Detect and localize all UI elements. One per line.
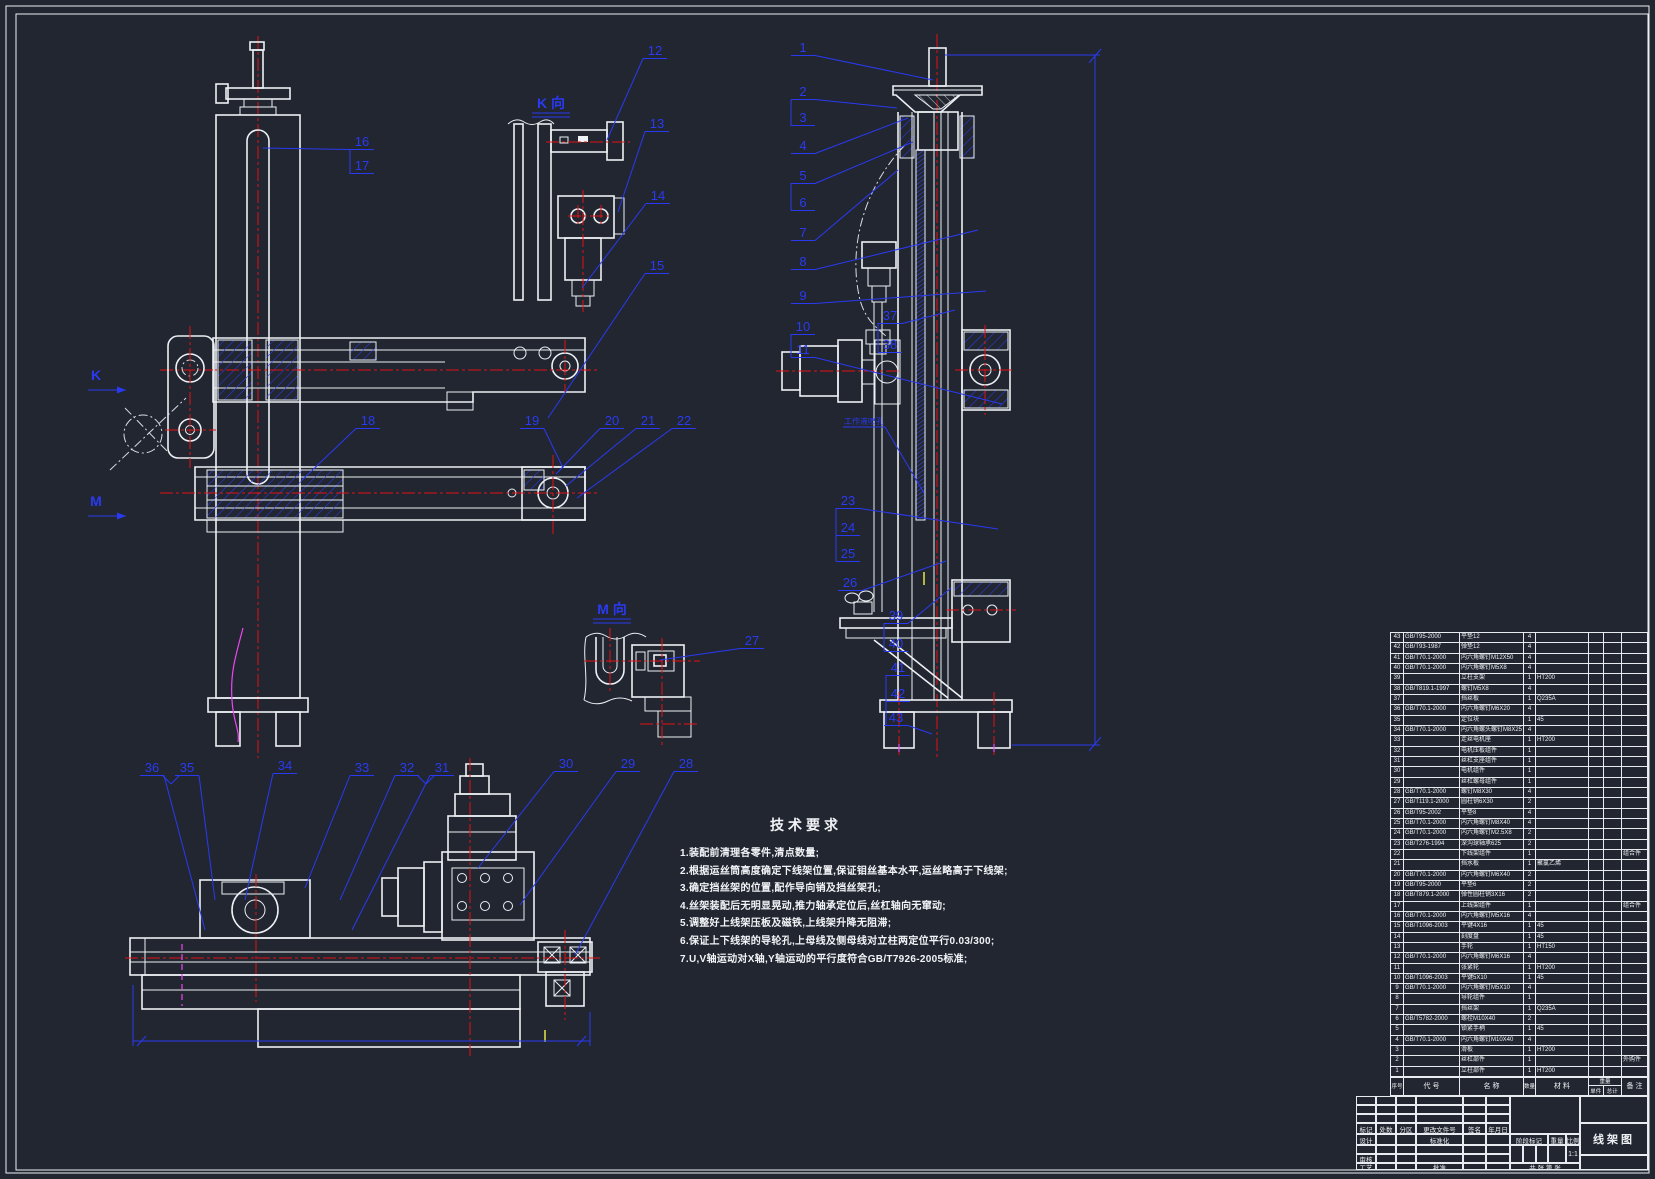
callout-label: 12 bbox=[648, 43, 662, 58]
title-block-cell bbox=[1356, 1105, 1376, 1114]
title-block-cell bbox=[1486, 1105, 1510, 1114]
bom-cell: 6 bbox=[1391, 1015, 1404, 1024]
title-block-cell bbox=[1416, 1096, 1463, 1105]
bom-cell: 1 bbox=[1524, 1056, 1536, 1065]
callout-label: 15 bbox=[650, 258, 664, 273]
callout-leader bbox=[860, 509, 998, 530]
title-block-cell bbox=[1396, 1096, 1416, 1105]
bom-cell: 1 bbox=[1524, 778, 1536, 787]
title-block-cell bbox=[1510, 1145, 1523, 1163]
bom-row: 7挡丝架1Q235A bbox=[1391, 1005, 1647, 1015]
callout-label: 7 bbox=[799, 225, 806, 240]
bom-cell: 37 bbox=[1391, 695, 1404, 704]
bom-header-weight-group: 重量 单件 总计 bbox=[1589, 1077, 1622, 1095]
bom-cell: 平垫12 bbox=[1460, 633, 1524, 642]
bom-cell: 内六角螺钉M6X16 bbox=[1460, 953, 1524, 962]
bom-cell bbox=[1589, 943, 1604, 952]
callout-label: 22 bbox=[677, 413, 691, 428]
bom-row: 19GB/T95-2000平垫62 bbox=[1391, 881, 1647, 891]
bom-cell: 定位块 bbox=[1460, 716, 1524, 725]
bom-cell: 4 bbox=[1524, 705, 1536, 714]
bom-cell bbox=[1622, 994, 1647, 1003]
title-block-cell bbox=[1396, 1114, 1416, 1123]
callout-label: 38 bbox=[883, 337, 897, 352]
bom-cell: 4 bbox=[1524, 809, 1536, 818]
bom-header-total-weight: 总计 bbox=[1604, 1086, 1621, 1095]
tech-requirements-list: 1.装配前清理各零件,清点数量;2.根据运丝筒高度确定下线架位置,保证钼丝基本水… bbox=[680, 845, 1120, 968]
bom-cell bbox=[1622, 695, 1647, 704]
title-block-cell bbox=[1486, 1114, 1510, 1123]
bom-cell bbox=[1536, 850, 1589, 859]
bom-cell bbox=[1589, 674, 1604, 683]
cad-drawing-sheet: 1234567891011373823242526394041424312131… bbox=[0, 0, 1655, 1179]
bom-cell: 2 bbox=[1524, 798, 1536, 807]
bom-cell bbox=[1622, 1025, 1647, 1034]
bom-cell: 1 bbox=[1524, 716, 1536, 725]
bom-cell: 下线架组件 bbox=[1460, 850, 1524, 859]
bom-row: 40GB/T70.1-2000内六角螺钉M5X84 bbox=[1391, 664, 1647, 674]
bom-cell bbox=[1536, 633, 1589, 642]
bom-cell bbox=[1604, 705, 1622, 714]
bom-row: 3滑板1HT200 bbox=[1391, 1046, 1647, 1056]
bom-cell: 28 bbox=[1391, 788, 1404, 797]
bom-cell bbox=[1604, 912, 1622, 921]
title-block-mark: 标记 bbox=[1356, 1123, 1376, 1134]
bom-cell: 组合件 bbox=[1622, 850, 1647, 859]
title-block-cell bbox=[1376, 1134, 1396, 1145]
bom-cell: Q235A bbox=[1536, 695, 1589, 704]
bom-cell bbox=[1604, 871, 1622, 880]
bom-cell: 4 bbox=[1524, 685, 1536, 694]
bom-cell: 43 bbox=[1391, 633, 1404, 642]
bom-cell bbox=[1622, 767, 1647, 776]
bom-cell bbox=[1404, 994, 1460, 1003]
bom-cell bbox=[1536, 881, 1589, 890]
bom-cell bbox=[1589, 840, 1604, 849]
bom-cell: 挡丝板 bbox=[1460, 695, 1524, 704]
callout-label: 13 bbox=[650, 116, 664, 131]
bom-cell bbox=[1622, 891, 1647, 900]
callout-leader bbox=[245, 774, 273, 901]
bom-cell bbox=[1404, 674, 1460, 683]
bom-cell: 14 bbox=[1391, 933, 1404, 942]
bom-cell: 5 bbox=[1391, 1025, 1404, 1034]
bom-cell bbox=[1589, 860, 1604, 869]
title-block-approve: 批准 bbox=[1416, 1163, 1463, 1170]
bom-cell bbox=[1536, 902, 1589, 911]
bom-cell bbox=[1604, 778, 1622, 787]
bom-cell: 深沟球轴承625 bbox=[1460, 840, 1524, 849]
callout-leader bbox=[815, 170, 898, 241]
callout-label: 19 bbox=[525, 413, 539, 428]
bom-cell bbox=[1536, 767, 1589, 776]
bom-cell bbox=[1622, 943, 1647, 952]
callout-label: 36 bbox=[145, 760, 159, 775]
bom-cell bbox=[1404, 695, 1460, 704]
bom-cell: 1 bbox=[1524, 767, 1536, 776]
callout-label: 5 bbox=[799, 168, 806, 183]
title-block-cell bbox=[1486, 1154, 1510, 1163]
bom-cell bbox=[1604, 984, 1622, 993]
bom-row: 4GB/T70.1-2000内六角螺钉M10X404 bbox=[1391, 1036, 1647, 1046]
bom-cell bbox=[1589, 1056, 1604, 1065]
title-block-zone: 分区 bbox=[1396, 1123, 1416, 1134]
bom-cell bbox=[1589, 633, 1604, 642]
bom-row: 28GB/T70.1-2000螺钉M8X304 bbox=[1391, 788, 1647, 798]
bom-cell: 8 bbox=[1391, 994, 1404, 1003]
bom-cell bbox=[1622, 819, 1647, 828]
tech-requirement-item: 4.丝架装配后无明显晃动,推力轴承定位后,丝杠轴向无窜动; bbox=[680, 898, 1120, 916]
bom-cell bbox=[1589, 974, 1604, 983]
title-block-design: 设计 bbox=[1356, 1134, 1376, 1145]
bom-cell: HT150 bbox=[1536, 943, 1589, 952]
bom-cell bbox=[1622, 953, 1647, 962]
bom-cell bbox=[1589, 736, 1604, 745]
bom-cell bbox=[1622, 705, 1647, 714]
bom-cell: 组合件 bbox=[1622, 902, 1647, 911]
view-label: K bbox=[91, 367, 101, 383]
bom-cell bbox=[1604, 902, 1622, 911]
callout-label: 8 bbox=[799, 254, 806, 269]
bom-row: 42GB/T93-1987弹垫124 bbox=[1391, 643, 1647, 653]
bom-cell bbox=[1622, 643, 1647, 652]
bom-row: 18GB/T879.1-2000弹性圆柱销3X162 bbox=[1391, 891, 1647, 901]
bom-cell: 弹性圆柱销3X16 bbox=[1460, 891, 1524, 900]
title-block-cell bbox=[1416, 1114, 1463, 1123]
title-block-scale-value: 1:1 bbox=[1566, 1145, 1580, 1163]
bom-cell bbox=[1622, 1036, 1647, 1045]
bom-cell bbox=[1604, 654, 1622, 663]
bom-row: 11张紧轮1HT200 bbox=[1391, 964, 1647, 974]
tech-requirement-item: 6.保证上下线架的导轮孔,上母线及侧母线对立柱两定位平行0.03/300; bbox=[680, 933, 1120, 951]
callout-label: 29 bbox=[621, 756, 635, 771]
bom-cell: 内六角螺钉M5X10 bbox=[1460, 984, 1524, 993]
bom-cell: 锁紧手柄 bbox=[1460, 1025, 1524, 1034]
title-block-cell bbox=[1396, 1105, 1416, 1114]
bom-cell: 17 bbox=[1391, 902, 1404, 911]
bom-cell bbox=[1604, 850, 1622, 859]
callout-label: 31 bbox=[435, 760, 449, 775]
bom-cell bbox=[1589, 871, 1604, 880]
bom-cell: 41 bbox=[1391, 654, 1404, 663]
title-block-cell bbox=[1416, 1105, 1463, 1114]
bom-cell: 电机组件 bbox=[1460, 767, 1524, 776]
bom-cell: 22 bbox=[1391, 850, 1404, 859]
bom-cell: GB/T70.1-2000 bbox=[1404, 788, 1460, 797]
bom-cell bbox=[1536, 891, 1589, 900]
title-block-cell bbox=[1463, 1096, 1486, 1105]
bom-row: 31丝杠支座组件1 bbox=[1391, 757, 1647, 767]
bom-cell bbox=[1622, 633, 1647, 642]
bom-cell: 35 bbox=[1391, 716, 1404, 725]
title-block-cell bbox=[1523, 1145, 1536, 1163]
title-block-title: 线架图 bbox=[1580, 1123, 1648, 1155]
bom-cell: GB/T276-1994 bbox=[1404, 840, 1460, 849]
bom-cell bbox=[1604, 1046, 1622, 1055]
view-label: M bbox=[90, 493, 102, 509]
bom-header-name: 名 称 bbox=[1460, 1077, 1524, 1095]
callout-leader bbox=[566, 429, 636, 487]
title-block-cell bbox=[1463, 1145, 1486, 1154]
bom-cell bbox=[1589, 767, 1604, 776]
bom-cell bbox=[1604, 767, 1622, 776]
bom-cell: 10 bbox=[1391, 974, 1404, 983]
arrowhead-icon bbox=[117, 387, 126, 394]
bom-cell: 39 bbox=[1391, 674, 1404, 683]
bom-cell: 内六角螺钉M12X50 bbox=[1460, 654, 1524, 663]
bom-cell bbox=[1622, 881, 1647, 890]
bom-cell bbox=[1589, 685, 1604, 694]
bom-cell bbox=[1536, 726, 1589, 735]
title-block-cell bbox=[1510, 1096, 1580, 1134]
title-block-sign: 签名 bbox=[1463, 1123, 1486, 1134]
bom-row: 34GB/T70.1-2000内六角螺头螺钉M8X254 bbox=[1391, 726, 1647, 736]
bom-cell: 4 bbox=[1524, 953, 1536, 962]
parts-list-header: 序号 代 号 名 称 数量 材 料 重量 单件 总计 备 注 bbox=[1390, 1076, 1648, 1096]
bom-cell bbox=[1536, 829, 1589, 838]
bom-cell: 4 bbox=[1524, 912, 1536, 921]
bom-row: 8导轮组件1 bbox=[1391, 994, 1647, 1004]
title-block-cell bbox=[1463, 1163, 1486, 1170]
bom-cell bbox=[1604, 1036, 1622, 1045]
bom-cell: GB/T5782-2000 bbox=[1404, 1015, 1460, 1024]
bom-cell bbox=[1589, 902, 1604, 911]
bom-cell bbox=[1589, 798, 1604, 807]
bom-cell bbox=[1604, 685, 1622, 694]
bom-cell: 走丝电机座 bbox=[1460, 736, 1524, 745]
bom-cell bbox=[1589, 716, 1604, 725]
title-block-cell bbox=[1463, 1114, 1486, 1123]
bom-cell bbox=[1622, 964, 1647, 973]
bom-cell: 2 bbox=[1524, 1015, 1536, 1024]
bom-cell: 4 bbox=[1524, 664, 1536, 673]
bom-cell: GB/T70.1-2000 bbox=[1404, 654, 1460, 663]
bom-row: 36GB/T70.1-2000内六角螺钉M6X204 bbox=[1391, 705, 1647, 715]
bom-cell bbox=[1589, 922, 1604, 931]
callout-leader bbox=[660, 649, 740, 661]
bom-cell: 4 bbox=[1524, 726, 1536, 735]
bom-cell: 16 bbox=[1391, 912, 1404, 921]
title-block-cell bbox=[1396, 1163, 1416, 1170]
bom-cell: 4 bbox=[1524, 788, 1536, 797]
title-block-process: 工艺 bbox=[1356, 1163, 1376, 1170]
bom-cell: 张紧轮 bbox=[1460, 964, 1524, 973]
bom-cell bbox=[1622, 747, 1647, 756]
bom-row: 30电机组件1 bbox=[1391, 767, 1647, 777]
bom-cell bbox=[1536, 788, 1589, 797]
bom-cell: 4 bbox=[1524, 654, 1536, 663]
bom-cell: 1 bbox=[1524, 902, 1536, 911]
bom-cell: 1 bbox=[1524, 1025, 1536, 1034]
bom-cell: 1 bbox=[1524, 747, 1536, 756]
bom-cell: 2 bbox=[1524, 891, 1536, 900]
bom-cell: 38 bbox=[1391, 685, 1404, 694]
bom-cell bbox=[1622, 933, 1647, 942]
bom-cell bbox=[1622, 685, 1647, 694]
bom-cell: 4 bbox=[1524, 633, 1536, 642]
callout-label: 17 bbox=[355, 158, 369, 173]
bom-cell: 2 bbox=[1524, 871, 1536, 880]
bom-cell: 3 bbox=[1391, 1046, 1404, 1055]
bom-cell: GB/T95-2000 bbox=[1404, 633, 1460, 642]
bom-cell bbox=[1622, 716, 1647, 725]
bom-cell bbox=[1589, 1005, 1604, 1014]
bom-cell bbox=[1404, 902, 1460, 911]
bom-cell: 内六角螺钉M5X16 bbox=[1460, 912, 1524, 921]
title-block-standard: 标准化 bbox=[1416, 1134, 1463, 1145]
callout-label: 28 bbox=[679, 756, 693, 771]
bom-header-qty: 数量 bbox=[1524, 1077, 1536, 1095]
bom-cell bbox=[1604, 881, 1622, 890]
callout-leader bbox=[340, 776, 395, 901]
bom-cell bbox=[1604, 757, 1622, 766]
bom-cell bbox=[1604, 1056, 1622, 1065]
k-direction-view bbox=[508, 120, 630, 312]
bom-cell bbox=[1589, 891, 1604, 900]
title-block: 标记处数分区更改文件号签名年月日设计标准化审核工艺批准阶段标记重量比例1:1共 … bbox=[1356, 1096, 1648, 1170]
bom-cell bbox=[1589, 695, 1604, 704]
bom-cell bbox=[1622, 798, 1647, 807]
bom-cell bbox=[1404, 964, 1460, 973]
title-block-cell bbox=[1376, 1163, 1396, 1170]
bom-cell: 13 bbox=[1391, 943, 1404, 952]
bom-header-remark: 备 注 bbox=[1622, 1077, 1647, 1095]
bom-cell: 聚氯乙烯 bbox=[1536, 860, 1589, 869]
bom-cell: 40 bbox=[1391, 664, 1404, 673]
bom-cell: GB/T93-1987 bbox=[1404, 643, 1460, 652]
title-block-cell bbox=[1548, 1145, 1566, 1163]
bom-cell bbox=[1589, 953, 1604, 962]
bom-cell bbox=[1604, 1025, 1622, 1034]
bom-row: 9GB/T70.1-2000内六角螺钉M5X104 bbox=[1391, 984, 1647, 994]
bom-header-seq: 序号 bbox=[1391, 1077, 1404, 1095]
bom-cell bbox=[1536, 685, 1589, 694]
bom-cell bbox=[1589, 778, 1604, 787]
bom-row: 2丝杠部件1外购件 bbox=[1391, 1056, 1647, 1066]
title-block-cell bbox=[1376, 1154, 1396, 1163]
bom-cell: 1 bbox=[1524, 674, 1536, 683]
bom-cell: 2 bbox=[1524, 840, 1536, 849]
callout-leader bbox=[263, 148, 350, 150]
callout-leader bbox=[305, 776, 350, 889]
title-block-cell bbox=[1486, 1163, 1510, 1170]
title-block-cell bbox=[1416, 1145, 1463, 1154]
bom-cell bbox=[1589, 757, 1604, 766]
bom-cell: 1 bbox=[1524, 933, 1536, 942]
callout-label: 25 bbox=[841, 546, 855, 561]
bom-cell: 螺栓M10X40 bbox=[1460, 1015, 1524, 1024]
bom-cell bbox=[1404, 943, 1460, 952]
bom-cell: 1 bbox=[1524, 860, 1536, 869]
bom-row: 29丝杠螺母组件1 bbox=[1391, 778, 1647, 788]
bom-cell bbox=[1604, 891, 1622, 900]
bom-cell: 螺钉M8X30 bbox=[1460, 788, 1524, 797]
bom-cell: 2 bbox=[1524, 881, 1536, 890]
callout-leader bbox=[862, 561, 946, 591]
callout-leader bbox=[575, 772, 674, 956]
callout-leader bbox=[902, 310, 955, 324]
bom-cell bbox=[1622, 974, 1647, 983]
bom-cell: GB/T70.1-2000 bbox=[1404, 984, 1460, 993]
callout-label: 4 bbox=[799, 138, 806, 153]
bom-row: 6GB/T5782-2000螺栓M10X402 bbox=[1391, 1015, 1647, 1025]
callout-label: 34 bbox=[278, 758, 292, 773]
bom-cell: 4 bbox=[1524, 643, 1536, 652]
bom-cell: 31 bbox=[1391, 757, 1404, 766]
bom-cell bbox=[1536, 705, 1589, 714]
bom-row: 10GB/T1096-2003平键5X10145 bbox=[1391, 974, 1647, 984]
bom-cell bbox=[1536, 798, 1589, 807]
bom-cell bbox=[1622, 912, 1647, 921]
bom-cell bbox=[1589, 726, 1604, 735]
title-block-cell bbox=[1356, 1096, 1376, 1105]
bom-cell bbox=[1622, 654, 1647, 663]
bom-cell bbox=[1604, 747, 1622, 756]
bom-cell: 33 bbox=[1391, 736, 1404, 745]
bom-cell: 42 bbox=[1391, 643, 1404, 652]
bom-cell: 弹垫12 bbox=[1460, 643, 1524, 652]
bom-cell: 30 bbox=[1391, 767, 1404, 776]
callout-label: 43 bbox=[889, 710, 903, 725]
bom-cell bbox=[1536, 953, 1589, 962]
title-block-cell bbox=[1580, 1096, 1648, 1123]
bom-cell bbox=[1604, 633, 1622, 642]
bom-cell: 1 bbox=[1524, 695, 1536, 704]
callout-label: 1 bbox=[799, 40, 806, 55]
bom-cell bbox=[1589, 643, 1604, 652]
bom-cell: 11 bbox=[1391, 964, 1404, 973]
title-block-cell bbox=[1376, 1096, 1396, 1105]
bom-cell bbox=[1404, 778, 1460, 787]
callout-leader bbox=[164, 776, 205, 931]
bom-cell bbox=[1622, 1005, 1647, 1014]
title-block-date: 年月日 bbox=[1486, 1123, 1510, 1134]
bom-cell bbox=[1589, 705, 1604, 714]
callout-leader bbox=[577, 429, 672, 499]
bom-row: 20GB/T70.1-2000内六角螺钉M6X402 bbox=[1391, 871, 1647, 881]
bom-cell: 外购件 bbox=[1622, 1056, 1647, 1065]
callout-label: 11 bbox=[796, 342, 810, 357]
bom-cell: GB/T70.1-2000 bbox=[1404, 726, 1460, 735]
bom-cell: 29 bbox=[1391, 778, 1404, 787]
bom-cell: 45 bbox=[1536, 716, 1589, 725]
bom-cell: 内六角螺钉M6X20 bbox=[1460, 705, 1524, 714]
bom-cell bbox=[1536, 654, 1589, 663]
bom-cell: 1 bbox=[1524, 850, 1536, 859]
bom-cell bbox=[1604, 788, 1622, 797]
bom-cell: 45 bbox=[1536, 922, 1589, 931]
bom-cell: 25 bbox=[1391, 819, 1404, 828]
bom-row: 33走丝电机座1HT200 bbox=[1391, 736, 1647, 746]
bom-cell bbox=[1589, 1015, 1604, 1024]
bom-cell: 1 bbox=[1524, 736, 1536, 745]
callout-label: 18 bbox=[361, 413, 375, 428]
bom-cell bbox=[1404, 933, 1460, 942]
bom-cell bbox=[1589, 747, 1604, 756]
bom-cell: GB/T95-2000 bbox=[1404, 881, 1460, 890]
bom-cell: 4 bbox=[1391, 1036, 1404, 1045]
callout-leader bbox=[815, 100, 897, 109]
bom-header-weight: 重量 bbox=[1589, 1077, 1621, 1086]
bom-cell: 平键5X10 bbox=[1460, 974, 1524, 983]
callout-leader bbox=[815, 118, 908, 154]
view-label: M 向 bbox=[597, 601, 627, 617]
bom-cell: 1 bbox=[1524, 757, 1536, 766]
callout-label: 10 bbox=[796, 319, 810, 334]
bom-row: 16GB/T70.1-2000内六角螺钉M5X164 bbox=[1391, 912, 1647, 922]
bom-cell: 26 bbox=[1391, 809, 1404, 818]
bom-row: 14刻度盘145 bbox=[1391, 933, 1647, 943]
